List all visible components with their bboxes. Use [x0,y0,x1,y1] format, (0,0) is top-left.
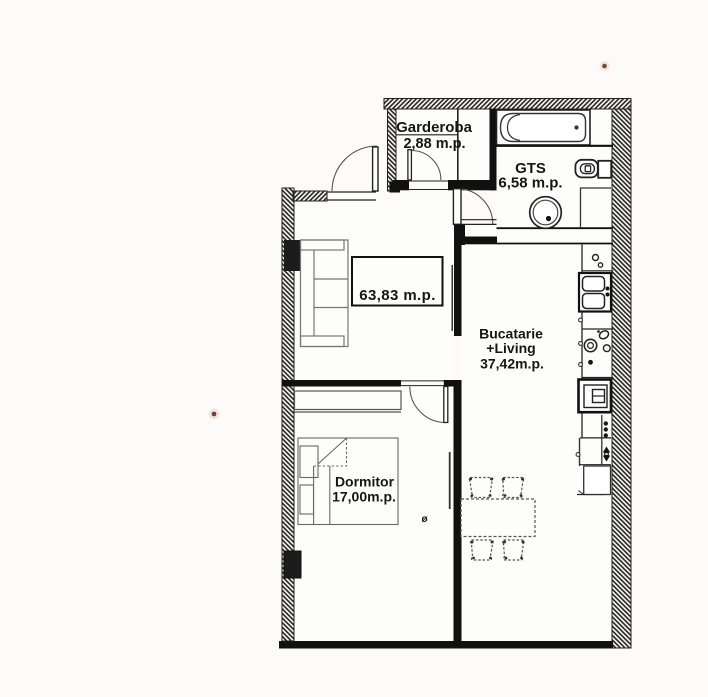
svg-text:Dormitor: Dormitor [335,474,395,490]
svg-text:6,58 m.p.: 6,58 m.p. [498,175,562,192]
svg-text:17,00m.p.: 17,00m.p. [332,489,396,505]
svg-text:ø: ø [422,514,429,525]
svg-text:2,88 m.p.: 2,88 m.p. [403,136,465,152]
svg-text:Garderoba: Garderoba [396,119,473,136]
svg-text:+Living: +Living [486,340,535,356]
svg-text:63,83 m.p.: 63,83 m.p. [359,287,436,304]
svg-text:37,42m.p.: 37,42m.p. [480,356,544,372]
